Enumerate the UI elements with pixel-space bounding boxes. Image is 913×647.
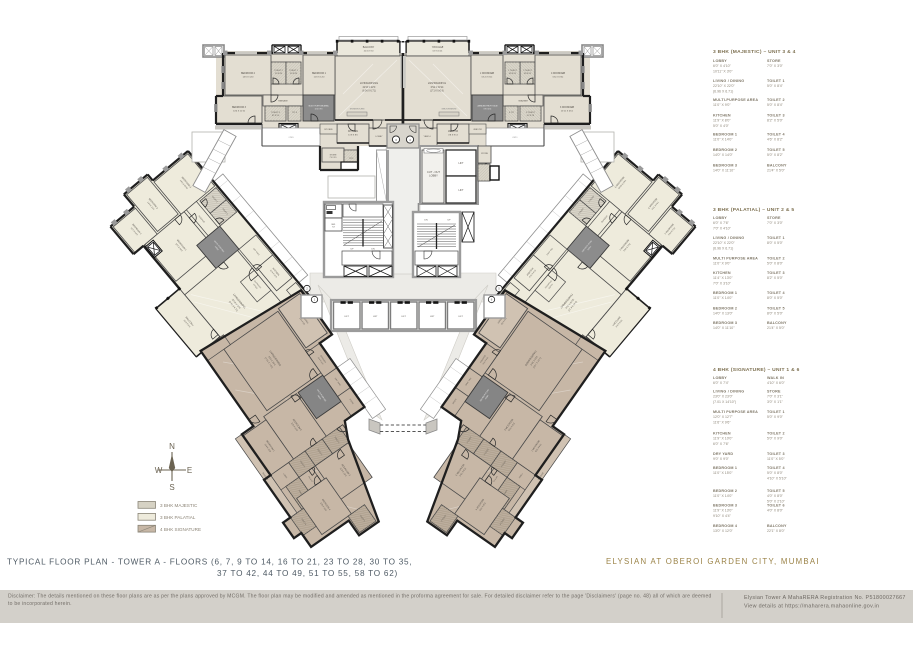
- svg-text:7'0 X 3'0: 7'0 X 3'0: [330, 157, 337, 159]
- svg-text:BEDROOM 2: BEDROOM 2: [241, 73, 256, 75]
- svg-text:(6.96 X 6.71): (6.96 X 6.71): [713, 89, 733, 93]
- svg-text:TOILET 4: TOILET 4: [767, 466, 785, 470]
- svg-text:KITCHEN: KITCHEN: [348, 131, 358, 133]
- svg-text:11'0 X 9'0: 11'0 X 9'0: [315, 109, 323, 111]
- svg-text:6'0" X 4'10": 6'0" X 4'10": [713, 64, 732, 68]
- svg-text:4'0" X 8'0": 4'0" X 8'0": [767, 509, 784, 513]
- svg-text:4'10" X 5'10": 4'10" X 5'10": [767, 476, 788, 480]
- svg-text:5'0" X 8'0": 5'0" X 8'0": [767, 262, 784, 266]
- svg-text:BEDROOM 2: BEDROOM 2: [713, 489, 737, 493]
- svg-text:TOILET 6: TOILET 6: [767, 504, 785, 508]
- svg-text:3 BHK (MAJESTIC) – UNIT 3 &: 3 BHK (MAJESTIC) – UNIT 3 & 4: [713, 49, 796, 55]
- svg-text:TOILET 3: TOILET 3: [767, 271, 785, 275]
- svg-text:3'0" X 1'1": 3'0" X 1'1": [767, 400, 784, 404]
- svg-text:KITCHEN: KITCHEN: [713, 432, 731, 436]
- svg-text:5'0 X 8'4: 5'0 X 8'4: [275, 73, 282, 75]
- svg-text:11'0" X 14'0": 11'0" X 14'0": [713, 494, 733, 498]
- svg-text:CUT - OUT: CUT - OUT: [427, 170, 440, 174]
- svg-text:11'9" X 13'0": 11'9" X 13'0": [713, 509, 733, 513]
- svg-text:TOILET 2: TOILET 2: [767, 98, 785, 102]
- svg-text:11'9 X 8'0: 11'9 X 8'0: [348, 134, 358, 136]
- svg-text:11'4" X 13'0": 11'4" X 13'0": [713, 276, 733, 280]
- svg-text:8'0" X 5'0": 8'0" X 5'0": [767, 241, 784, 245]
- svg-text:BEDROOM 1: BEDROOM 1: [713, 133, 737, 137]
- svg-text:TYPICAL FLOOR PLAN - TOWER A -: TYPICAL FLOOR PLAN - TOWER A - FLOORS (6…: [7, 558, 412, 567]
- svg-text:to be incorporated herein.: to be incorporated herein.: [8, 601, 72, 607]
- svg-text:LIVING / DINING: LIVING / DINING: [713, 79, 744, 83]
- svg-text:3 BHK (PALATIAL) – UNIT 2 & 5: 3 BHK (PALATIAL) – UNIT 2 & 5: [713, 207, 794, 213]
- svg-text:5'0" X 8'0": 5'0" X 8'0": [767, 471, 784, 475]
- svg-text:BEDROOM 2: BEDROOM 2: [713, 307, 737, 311]
- svg-text:LIVING / DINING: LIVING / DINING: [713, 236, 744, 240]
- svg-text:TLT 4: TLT 4: [292, 112, 297, 114]
- svg-text:6'0" X 7'6": 6'0" X 7'6": [713, 442, 730, 446]
- svg-text:STORE: STORE: [481, 153, 489, 155]
- svg-text:14'0 X 14'0: 14'0 X 14'0: [243, 76, 255, 78]
- svg-text:BEDROOM 3: BEDROOM 3: [713, 164, 737, 168]
- svg-text:SHOWER/KITCHEN: SHOWER/KITCHEN: [350, 109, 365, 111]
- svg-text:View details at https://mahare: View details at https://maharera.mahaonl…: [744, 604, 879, 610]
- svg-text:14'0" X 11'10": 14'0" X 11'10": [713, 326, 735, 330]
- svg-text:4'6" X 8'2": 4'6" X 8'2": [767, 138, 784, 142]
- svg-text:23'0" X 23'0": 23'0" X 23'0": [713, 395, 734, 399]
- svg-text:BEDROOM 1: BEDROOM 1: [312, 73, 327, 75]
- svg-text:LIVING/DINING: LIVING/DINING: [360, 81, 378, 85]
- svg-text:Disclaimer: The details mentio: Disclaimer: The details mentioned on the…: [8, 594, 712, 600]
- svg-text:BEDROOM 1: BEDROOM 1: [713, 291, 737, 295]
- svg-text:MULTI PURPOSE AREA: MULTI PURPOSE AREA: [309, 105, 330, 108]
- svg-text:DRY YARD: DRY YARD: [324, 128, 333, 131]
- svg-text:UP: UP: [447, 220, 451, 222]
- svg-text:5'0" X 9'0": 5'0" X 9'0": [767, 437, 784, 441]
- svg-text:5'0" X 8'2": 5'0" X 8'2": [767, 153, 784, 157]
- svg-text:TOILET 5: TOILET 5: [767, 307, 785, 311]
- svg-text:21'4" X 5'0": 21'4" X 5'0": [767, 326, 786, 330]
- svg-text:STORE: STORE: [767, 390, 781, 394]
- svg-text:BEDROOM 4: BEDROOM 4: [713, 524, 738, 528]
- svg-text:LIFT: LIFT: [458, 316, 463, 318]
- svg-text:11'9" X 10'0": 11'9" X 10'0": [713, 437, 733, 441]
- svg-text:BEDROOM 3: BEDROOM 3: [713, 504, 737, 508]
- svg-text:22'10" X 22'0": 22'10" X 22'0": [713, 241, 735, 245]
- svg-text:LOBBY: LOBBY: [713, 376, 727, 380]
- svg-text:BEDROOM 1: BEDROOM 1: [713, 466, 737, 470]
- svg-text:UP: UP: [350, 249, 354, 251]
- svg-text:13'0" X 12'0": 13'0" X 12'0": [713, 529, 734, 533]
- svg-text:N: N: [169, 442, 175, 451]
- svg-text:7'0" X 3'0": 7'0" X 3'0": [767, 64, 784, 68]
- svg-text:5'0" X 9'0": 5'0" X 9'0": [767, 415, 784, 419]
- svg-text:11'0" X 9'0": 11'0" X 9'0": [713, 103, 731, 107]
- svg-text:14'0" X 14'0": 14'0" X 14'0": [713, 153, 734, 157]
- svg-text:BEDROOM 2: BEDROOM 2: [713, 148, 737, 152]
- svg-text:BALCONY: BALCONY: [767, 524, 787, 528]
- svg-text:BALCONY: BALCONY: [767, 164, 787, 168]
- svg-text:LOBBY: LOBBY: [429, 174, 438, 178]
- svg-text:14'0" X 13'0": 14'0" X 13'0": [713, 312, 734, 316]
- svg-text:(6.96 X 6.71): (6.96 X 6.71): [713, 246, 733, 250]
- svg-text:STORE: STORE: [767, 59, 781, 63]
- svg-text:TLT 5: TLT 5: [349, 158, 354, 160]
- svg-text:TOILET 2: TOILET 2: [767, 432, 785, 436]
- svg-text:TOILET 3: TOILET 3: [767, 452, 785, 456]
- svg-text:WALK IN: WALK IN: [767, 376, 784, 380]
- svg-text:21'4 X 5'0: 21'4 X 5'0: [364, 50, 374, 52]
- svg-text:LOBBY: LOBBY: [376, 136, 384, 138]
- svg-text:TOILET 1: TOILET 1: [289, 70, 298, 72]
- svg-text:11'0 X 14'0: 11'0 X 14'0: [314, 76, 325, 78]
- svg-text:5'0" X 4'0": 5'0" X 4'0": [713, 124, 730, 128]
- svg-text:STORE: STORE: [330, 155, 338, 157]
- svg-text:3 BHK PALATIAL: 3 BHK PALATIAL: [160, 515, 196, 520]
- svg-text:8'2 X 5'0: 8'2 X 5'0: [272, 115, 279, 117]
- svg-text:BEDROOM 3: BEDROOM 3: [713, 321, 737, 325]
- svg-text:STORE: STORE: [767, 216, 781, 220]
- svg-text:10'11" X 3'0": 10'11" X 3'0": [713, 69, 733, 73]
- svg-text:KITCHEN: KITCHEN: [713, 114, 731, 118]
- svg-text:11'9" X 8'0": 11'9" X 8'0": [713, 119, 731, 123]
- svg-text:5'0" X 8'4": 5'0" X 8'4": [767, 103, 784, 107]
- svg-text:TOILET 5: TOILET 5: [767, 148, 785, 152]
- svg-text:TOILET 2: TOILET 2: [274, 70, 283, 72]
- svg-text:E: E: [187, 466, 192, 475]
- svg-text:BALCONY: BALCONY: [363, 46, 375, 49]
- svg-text:(7.01 X 14'10"): (7.01 X 14'10"): [713, 400, 736, 404]
- svg-text:TOILET 5: TOILET 5: [767, 489, 785, 493]
- svg-text:TOILET 1: TOILET 1: [767, 79, 785, 83]
- svg-text:5'0 X 8'4: 5'0 X 8'4: [290, 73, 297, 75]
- svg-text:8'0" X 5'0": 8'0" X 5'0": [767, 312, 784, 316]
- svg-text:11'0" X 14'0": 11'0" X 14'0": [713, 138, 733, 142]
- svg-text:LIVING / DINING: LIVING / DINING: [713, 390, 744, 394]
- svg-text:LOBBY: LOBBY: [713, 216, 727, 220]
- svg-text:14'0" X 11'10": 14'0" X 11'10": [713, 169, 735, 173]
- svg-text:LIFT: LIFT: [401, 316, 406, 318]
- svg-text:BALCONY: BALCONY: [767, 321, 787, 325]
- svg-text:ELYSIAN AT OBEROI GARDEN CITY,: ELYSIAN AT OBEROI GARDEN CITY, MUMBAI: [606, 557, 820, 566]
- svg-text:11'0" X 14'0": 11'0" X 14'0": [713, 296, 733, 300]
- svg-text:LIFT: LIFT: [459, 189, 464, 192]
- svg-text:7'0" X 3'10": 7'0" X 3'10": [713, 281, 732, 285]
- svg-text:PASSAGE: PASSAGE: [278, 100, 288, 103]
- svg-text:OPEN: OPEN: [288, 137, 294, 139]
- svg-text:BEDROOM 3: BEDROOM 3: [232, 107, 247, 109]
- svg-text:7'0" X 3'1": 7'0" X 3'1": [767, 395, 784, 399]
- svg-text:6'0" X 7'6": 6'0" X 7'6": [713, 221, 730, 225]
- svg-text:LIFT: LIFT: [373, 316, 378, 318]
- svg-text:TOILET 1: TOILET 1: [767, 236, 785, 240]
- svg-text:4 BHK (SIGNATURE) – UNIT 1 & 6: 4 BHK (SIGNATURE) – UNIT 1 & 6: [713, 367, 800, 373]
- svg-text:22'1" X 8'0": 22'1" X 8'0": [767, 529, 786, 533]
- svg-text:4 BHK SIGNATURE: 4 BHK SIGNATURE: [160, 527, 201, 532]
- svg-text:KITCHEN: KITCHEN: [713, 271, 731, 275]
- svg-text:3 BHK MAJESTIC: 3 BHK MAJESTIC: [160, 503, 198, 508]
- svg-text:7'0" X 4'10": 7'0" X 4'10": [713, 226, 732, 230]
- svg-text:4'0" X 8'0": 4'0" X 8'0": [767, 494, 784, 498]
- svg-text:11'6" X 9'6": 11'6" X 9'6": [713, 420, 731, 424]
- svg-text:MULTI PURPOSE AREA: MULTI PURPOSE AREA: [713, 410, 758, 414]
- svg-text:LIFT: LIFT: [459, 162, 464, 165]
- svg-text:S: S: [169, 483, 174, 492]
- svg-text:LIFT: LIFT: [430, 316, 435, 318]
- svg-text:TOILET 4: TOILET 4: [767, 291, 785, 295]
- svg-text:5'0" X 8'4": 5'0" X 8'4": [767, 84, 784, 88]
- svg-text:LIFT: LIFT: [344, 316, 349, 318]
- svg-text:TOILET 2: TOILET 2: [767, 257, 785, 261]
- svg-text:7'0" X 3'0": 7'0" X 3'0": [767, 221, 784, 225]
- svg-text:DN: DN: [371, 249, 375, 251]
- svg-text:TOILET 3: TOILET 3: [271, 112, 280, 114]
- svg-text:8'0" X 5'0": 8'0" X 5'0": [767, 296, 784, 300]
- svg-text:37 TO 42, 44 TO 49, 51 TO 55,: 37 TO 42, 44 TO 49, 51 TO 55, 58 TO 62): [217, 569, 398, 578]
- svg-text:W: W: [155, 466, 163, 475]
- svg-text:21'4" X 5'0": 21'4" X 5'0": [767, 169, 786, 173]
- svg-text:22'10" X 22'0": 22'10" X 22'0": [713, 84, 735, 88]
- svg-text:DRY YARD: DRY YARD: [713, 452, 733, 456]
- svg-text:8'2" X 5'0": 8'2" X 5'0": [767, 119, 784, 123]
- svg-text:11'0" X 9'0": 11'0" X 9'0": [713, 262, 731, 266]
- svg-text:TOILET 4: TOILET 4: [767, 133, 785, 137]
- svg-text:LOBBY: LOBBY: [713, 59, 727, 63]
- svg-text:11'0" X 15'0": 11'0" X 15'0": [713, 471, 733, 475]
- svg-text:TOILET 3: TOILET 3: [767, 114, 785, 118]
- svg-text:MULTI PURPOSE AREA: MULTI PURPOSE AREA: [713, 257, 758, 261]
- svg-text:Elysian Tower A MahaRERA Regis: Elysian Tower A MahaRERA Registration No…: [744, 595, 906, 601]
- svg-text:4'10" X 6'0": 4'10" X 6'0": [767, 381, 786, 385]
- svg-text:DN: DN: [424, 220, 428, 222]
- svg-text:14'0 X 11'10: 14'0 X 11'10: [233, 110, 246, 112]
- svg-text:6'0" X 7'4": 6'0" X 7'4": [713, 381, 730, 385]
- svg-text:8'2" X 5'0": 8'2" X 5'0": [767, 276, 784, 280]
- svg-text:9'0" X 9'0": 9'0" X 9'0": [713, 457, 730, 461]
- svg-text:TOILET 1: TOILET 1: [767, 410, 785, 414]
- svg-text:MULTI-PURPOSE AREA: MULTI-PURPOSE AREA: [713, 98, 758, 102]
- svg-text:9'10" X 4'4": 9'10" X 4'4": [713, 514, 732, 518]
- svg-text:12'0" X 12'7": 12'0" X 12'7": [713, 415, 734, 419]
- svg-text:11'0" X 5'0": 11'0" X 5'0": [767, 457, 785, 461]
